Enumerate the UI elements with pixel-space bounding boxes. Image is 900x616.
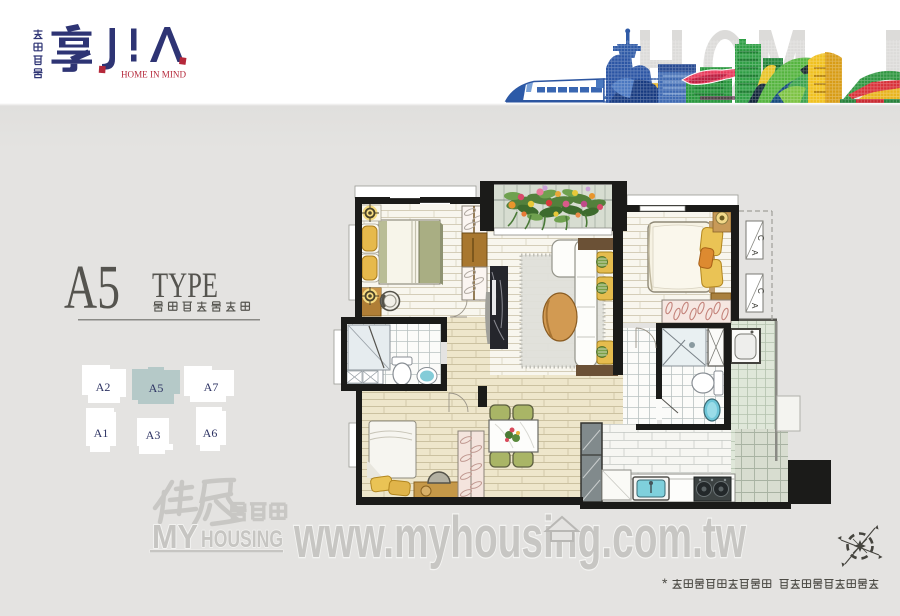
svg-text:TYPE: TYPE [152,265,218,305]
svg-text:A: A [750,250,759,256]
svg-text:C: C [756,235,765,241]
svg-text:*: * [662,575,668,591]
svg-text:A1: A1 [94,426,109,440]
svg-text:MY: MY [152,518,198,555]
svg-text:HOME IN MIND: HOME IN MIND [121,70,186,80]
svg-text:A7: A7 [204,380,219,394]
svg-text:A6: A6 [203,426,218,440]
svg-text:www.myhousing.com.tw: www.myhousing.com.tw [293,505,746,570]
svg-text:C: C [756,288,765,294]
svg-text:A5: A5 [64,254,120,322]
svg-text:A: A [750,303,759,309]
svg-text:A3: A3 [146,428,161,442]
svg-text:A2: A2 [96,380,111,394]
svg-text:A5: A5 [149,381,164,395]
svg-text:HOUSING: HOUSING [201,526,283,553]
